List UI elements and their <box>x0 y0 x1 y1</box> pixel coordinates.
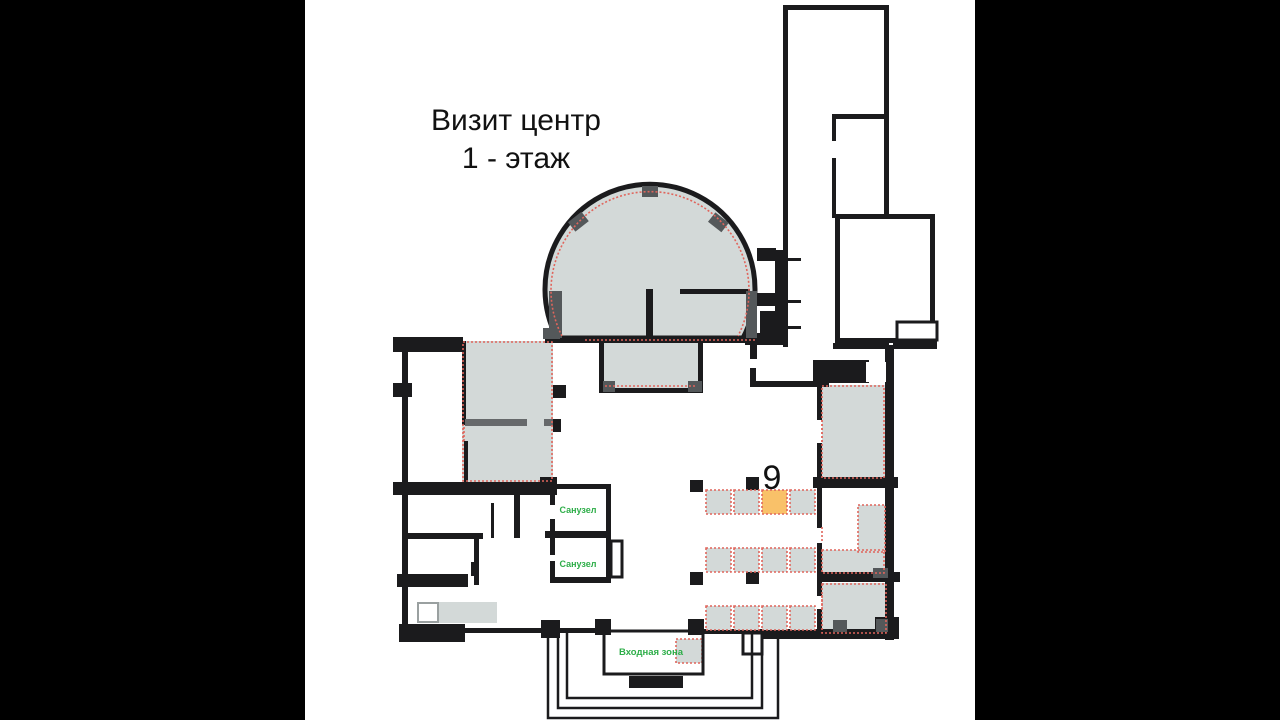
entrance-zone-label: Входная зона <box>619 647 684 658</box>
wall-notch <box>866 362 886 382</box>
plan-title-line1: Визит центр <box>431 104 601 137</box>
table <box>790 606 815 630</box>
plan-title-line2: 1 - этаж <box>462 142 570 175</box>
hall-pillar <box>690 572 703 585</box>
table-marker-number: 9 <box>763 459 782 497</box>
left-exhibit-room <box>462 341 553 482</box>
bench-white-box <box>418 603 438 622</box>
table <box>790 548 815 572</box>
toilet-label-2: Санузел <box>559 559 596 569</box>
table <box>734 548 759 572</box>
floorplan-image: Визит центр 1 - этаж 9 Санузел Санузел В… <box>0 0 1280 720</box>
table <box>762 548 787 572</box>
toilet-label-1: Санузел <box>559 505 596 515</box>
table <box>706 548 731 572</box>
right-room-a <box>822 385 885 478</box>
right-room-b-strip-vertical <box>858 505 885 552</box>
vestibule-room <box>602 341 700 390</box>
hall-pillar <box>746 477 759 490</box>
table <box>706 606 731 630</box>
hall-pillar <box>690 480 703 492</box>
table <box>734 490 759 514</box>
entrance-mat <box>629 676 683 688</box>
table <box>790 490 815 514</box>
table <box>734 606 759 630</box>
toilet-niche <box>611 541 622 577</box>
table <box>706 490 731 514</box>
table <box>762 606 787 630</box>
